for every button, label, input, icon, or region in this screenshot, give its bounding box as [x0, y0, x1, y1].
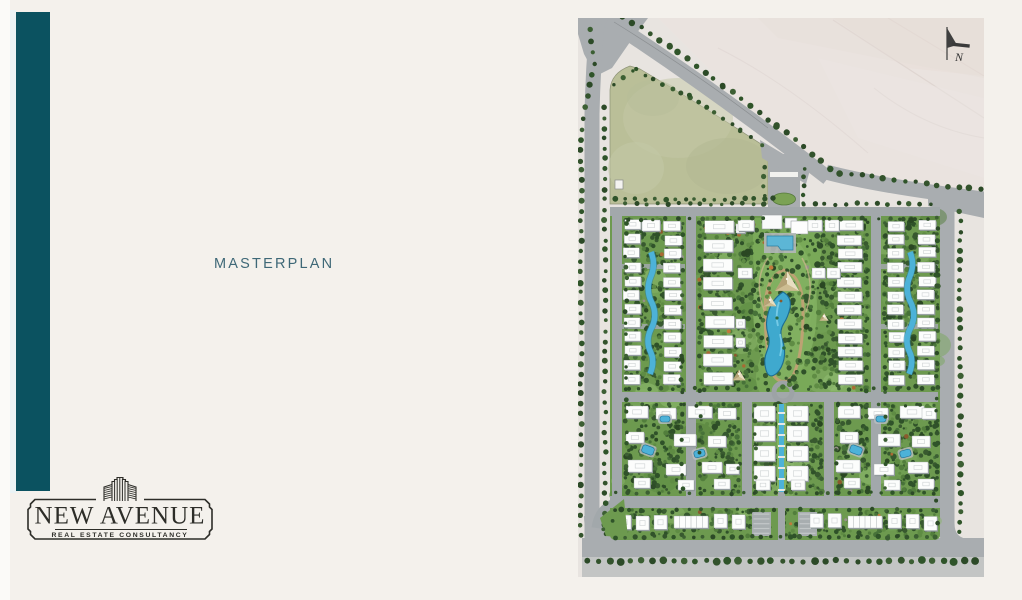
svg-text:NEW AVENUE: NEW AVENUE	[35, 503, 206, 530]
svg-text:REAL ESTATE CONSULTANCY: REAL ESTATE CONSULTANCY	[51, 532, 188, 539]
svg-text:N: N	[954, 50, 964, 64]
